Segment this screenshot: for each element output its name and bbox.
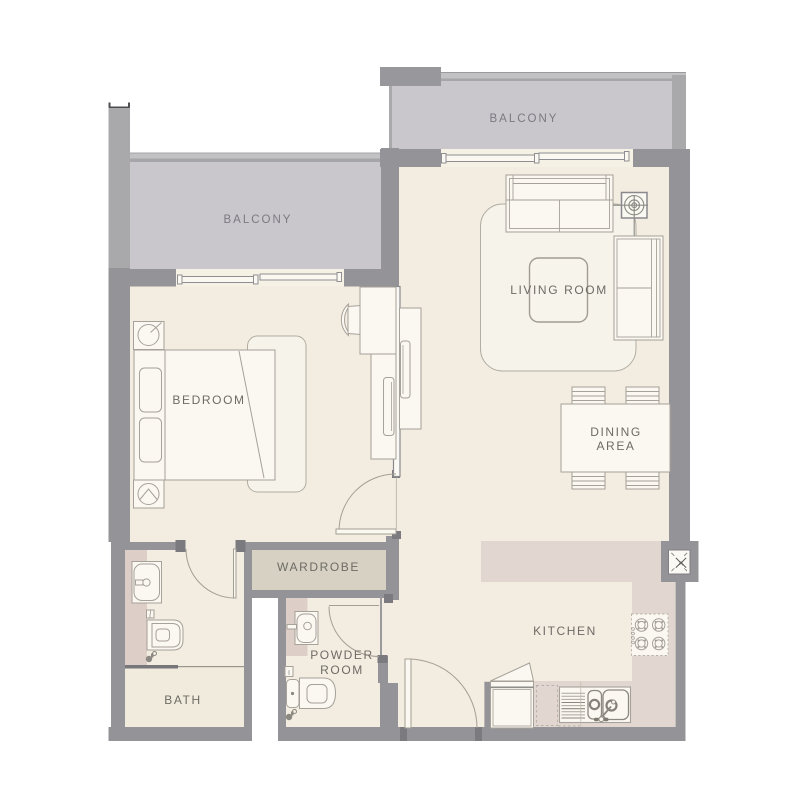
svg-text:BEDROOM: BEDROOM	[172, 393, 245, 407]
svg-text:BALCONY: BALCONY	[490, 113, 559, 125]
svg-text:WARDROBE: WARDROBE	[277, 560, 360, 574]
svg-text:BALCONY: BALCONY	[224, 214, 293, 226]
svg-text:AREA: AREA	[596, 439, 635, 453]
svg-text:ROOM: ROOM	[320, 663, 364, 677]
svg-text:LIVING ROOM: LIVING ROOM	[510, 283, 608, 297]
svg-text:KITCHEN: KITCHEN	[533, 624, 597, 638]
svg-text:BATH: BATH	[164, 693, 202, 707]
svg-text:POWDER: POWDER	[310, 648, 374, 662]
svg-text:DINING: DINING	[590, 425, 642, 439]
